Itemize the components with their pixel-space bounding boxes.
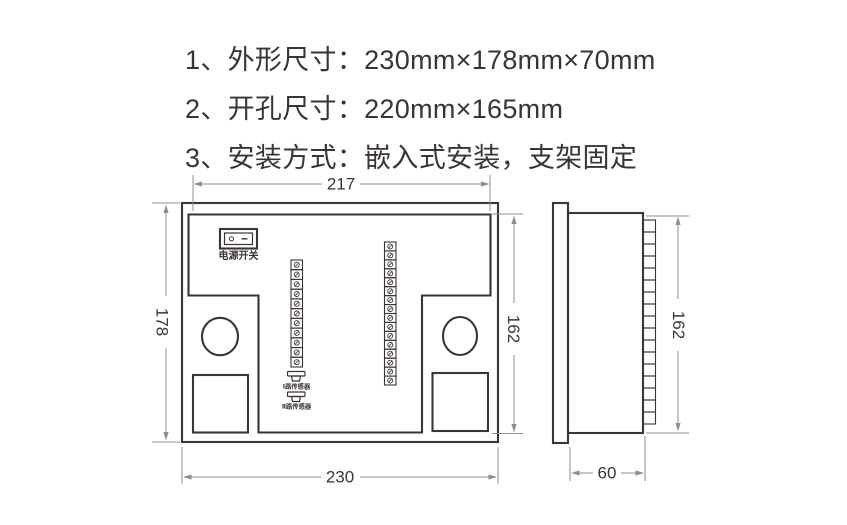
power-switch: [220, 229, 257, 249]
side-front-bezel: [553, 203, 568, 443]
arrow-right-icon: [636, 470, 645, 475]
mounting-hole-right: [443, 317, 477, 355]
mounting-hole-left: [202, 318, 238, 355]
rear-left-terminal-strip: [291, 260, 303, 367]
sensor-connector-2-bar: [288, 392, 306, 397]
svg-text:230: 230: [326, 468, 354, 487]
power-off-icon: [229, 237, 233, 241]
svg-text:162: 162: [504, 315, 523, 343]
arrow-left-icon: [194, 181, 203, 186]
svg-text:178: 178: [153, 308, 172, 336]
svg-text:217: 217: [327, 175, 355, 194]
arrow-left-icon: [183, 474, 192, 479]
sensor-channel-1-label: Ⅰ路传感器: [283, 382, 311, 391]
dimension-drawing: 电源开关 Ⅰ路传感器 Ⅱ路传感器: [0, 0, 847, 525]
sensor-connector-2-plug: [292, 397, 301, 402]
side-body: [568, 213, 643, 433]
arrow-down-icon: [163, 432, 168, 441]
arrow-left-icon: [571, 470, 580, 475]
arrow-down-icon: [675, 423, 680, 432]
arrow-up-icon: [511, 216, 516, 225]
arrow-right-icon: [481, 181, 490, 186]
cutout-left: [193, 375, 248, 433]
svg-text:162: 162: [669, 311, 688, 339]
sensor-connector-2: [288, 392, 306, 402]
power-switch-label: 电源开关: [219, 249, 259, 262]
dim-side-depth: 60: [570, 436, 645, 483]
arrow-down-icon: [511, 424, 516, 433]
cutout-right: [433, 373, 489, 431]
dim-rear-top-width: 217: [193, 175, 490, 212]
arrow-right-icon: [489, 474, 498, 479]
power-switch-outer-frame: [220, 229, 257, 249]
rear-view-drawing: 电源开关 Ⅰ路传感器 Ⅱ路传感器: [182, 203, 498, 442]
sensor-connector-1-plug: [292, 376, 301, 381]
sensor-connector-1-bar: [288, 372, 306, 377]
arrow-up-icon: [675, 217, 680, 226]
dim-rear-right-height: 162: [492, 214, 523, 434]
arrow-up-icon: [163, 205, 168, 214]
rear-right-terminal-strip: [385, 242, 397, 385]
dimension-annotations: 217 178 162: [152, 175, 689, 487]
sensor-connector-1: [288, 372, 306, 382]
dim-rear-left-height: 178: [152, 203, 180, 442]
sensor-channel-2-label: Ⅱ路传感器: [282, 402, 312, 411]
power-switch-rocker: [225, 233, 253, 245]
side-terminal-strip: [643, 220, 656, 424]
side-view-drawing: [553, 203, 656, 443]
svg-text:60: 60: [598, 464, 617, 483]
dim-rear-bottom-width: 230: [182, 447, 498, 487]
